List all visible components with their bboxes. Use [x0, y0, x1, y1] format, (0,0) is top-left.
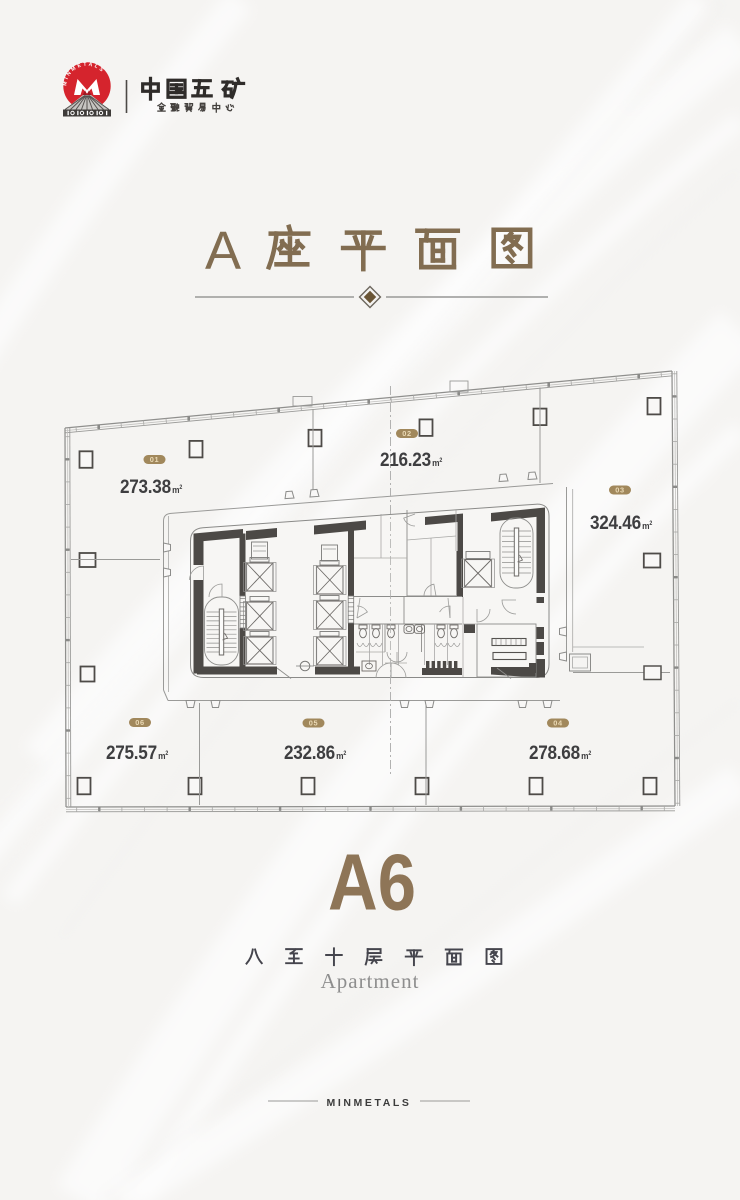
svg-text:A: A [205, 221, 241, 281]
svg-text:278.68m2: 278.68m2 [529, 741, 591, 763]
svg-text:04: 04 [553, 719, 563, 728]
svg-text:MINMETALS: MINMETALS [326, 1097, 411, 1109]
svg-text:216.23m2: 216.23m2 [380, 448, 442, 470]
svg-text:02: 02 [402, 429, 411, 438]
svg-text:05: 05 [309, 719, 318, 728]
svg-text:Apartment: Apartment [321, 969, 420, 993]
svg-text:01: 01 [150, 455, 159, 464]
svg-text:06: 06 [135, 718, 144, 727]
svg-text:273.38m2: 273.38m2 [120, 475, 182, 497]
svg-text:275.57m2: 275.57m2 [106, 741, 168, 763]
svg-text:A6: A6 [328, 837, 416, 927]
svg-text:03: 03 [615, 486, 624, 495]
svg-text:232.86m2: 232.86m2 [284, 741, 346, 763]
